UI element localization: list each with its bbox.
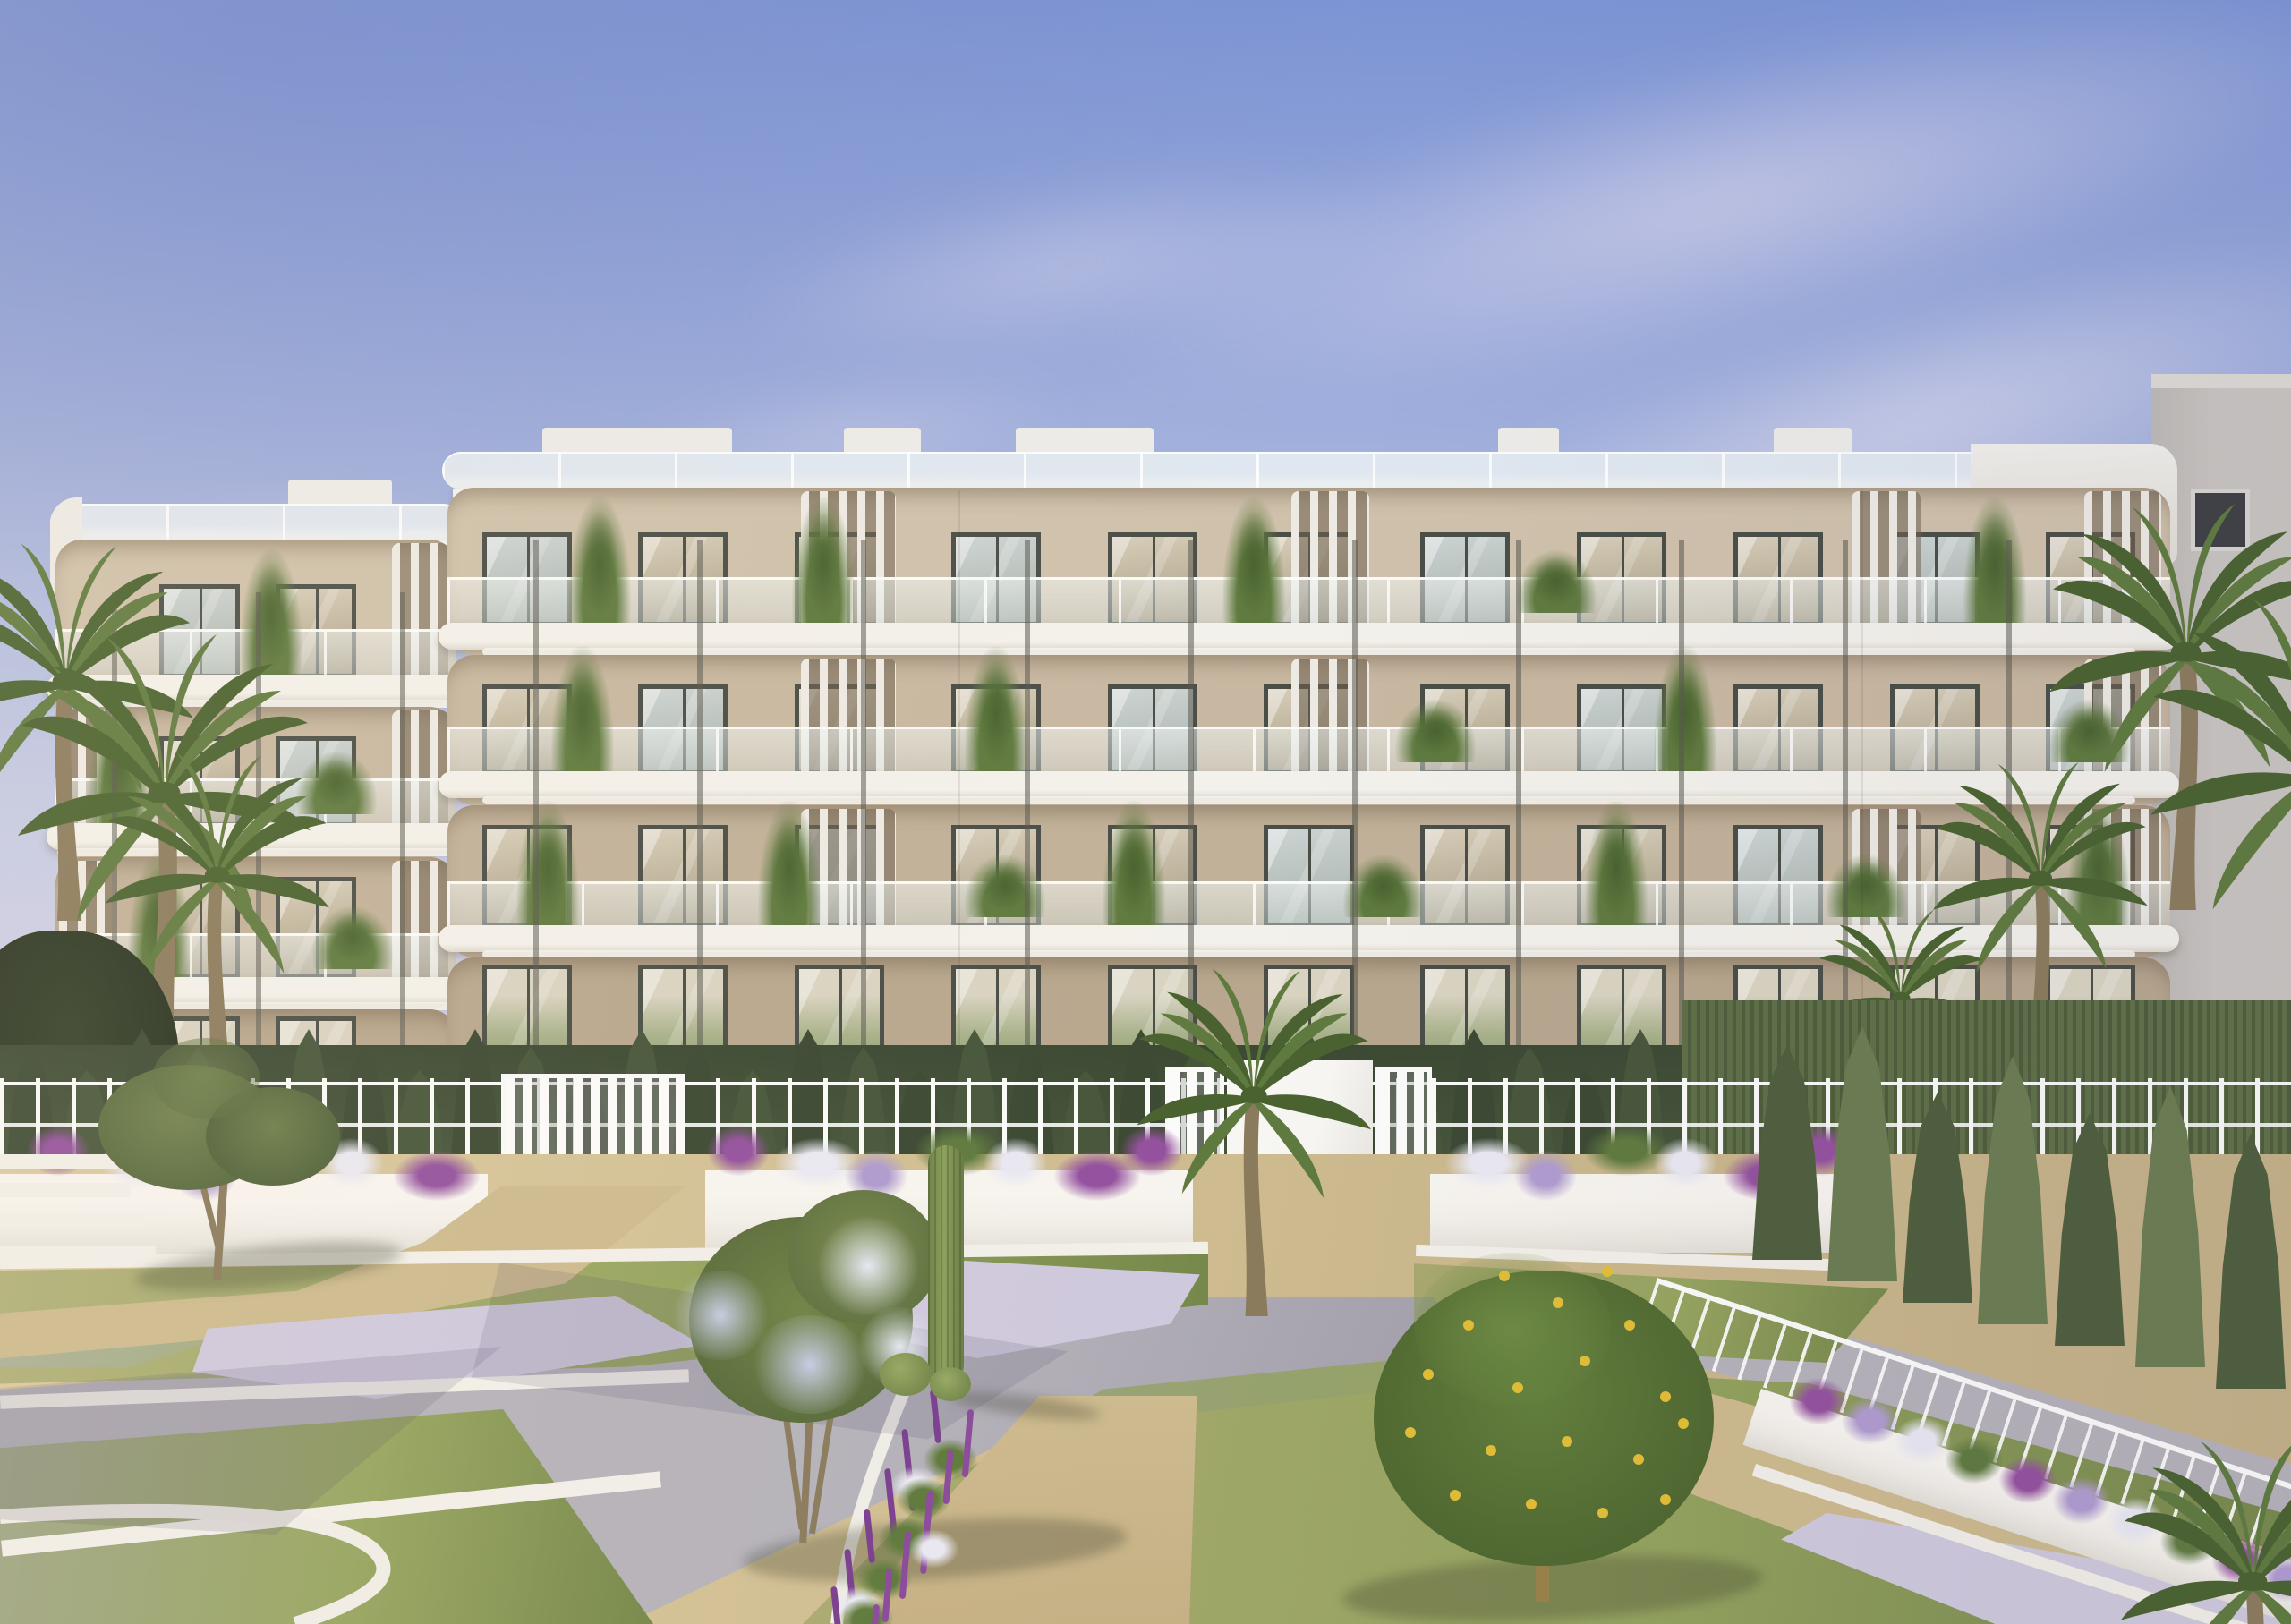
architectural-render-scene — [0, 0, 2291, 1624]
palm-tree — [2121, 1432, 2291, 1624]
palm-trees-foreground — [0, 0, 2291, 1624]
palm-tree — [1135, 962, 1371, 1316]
